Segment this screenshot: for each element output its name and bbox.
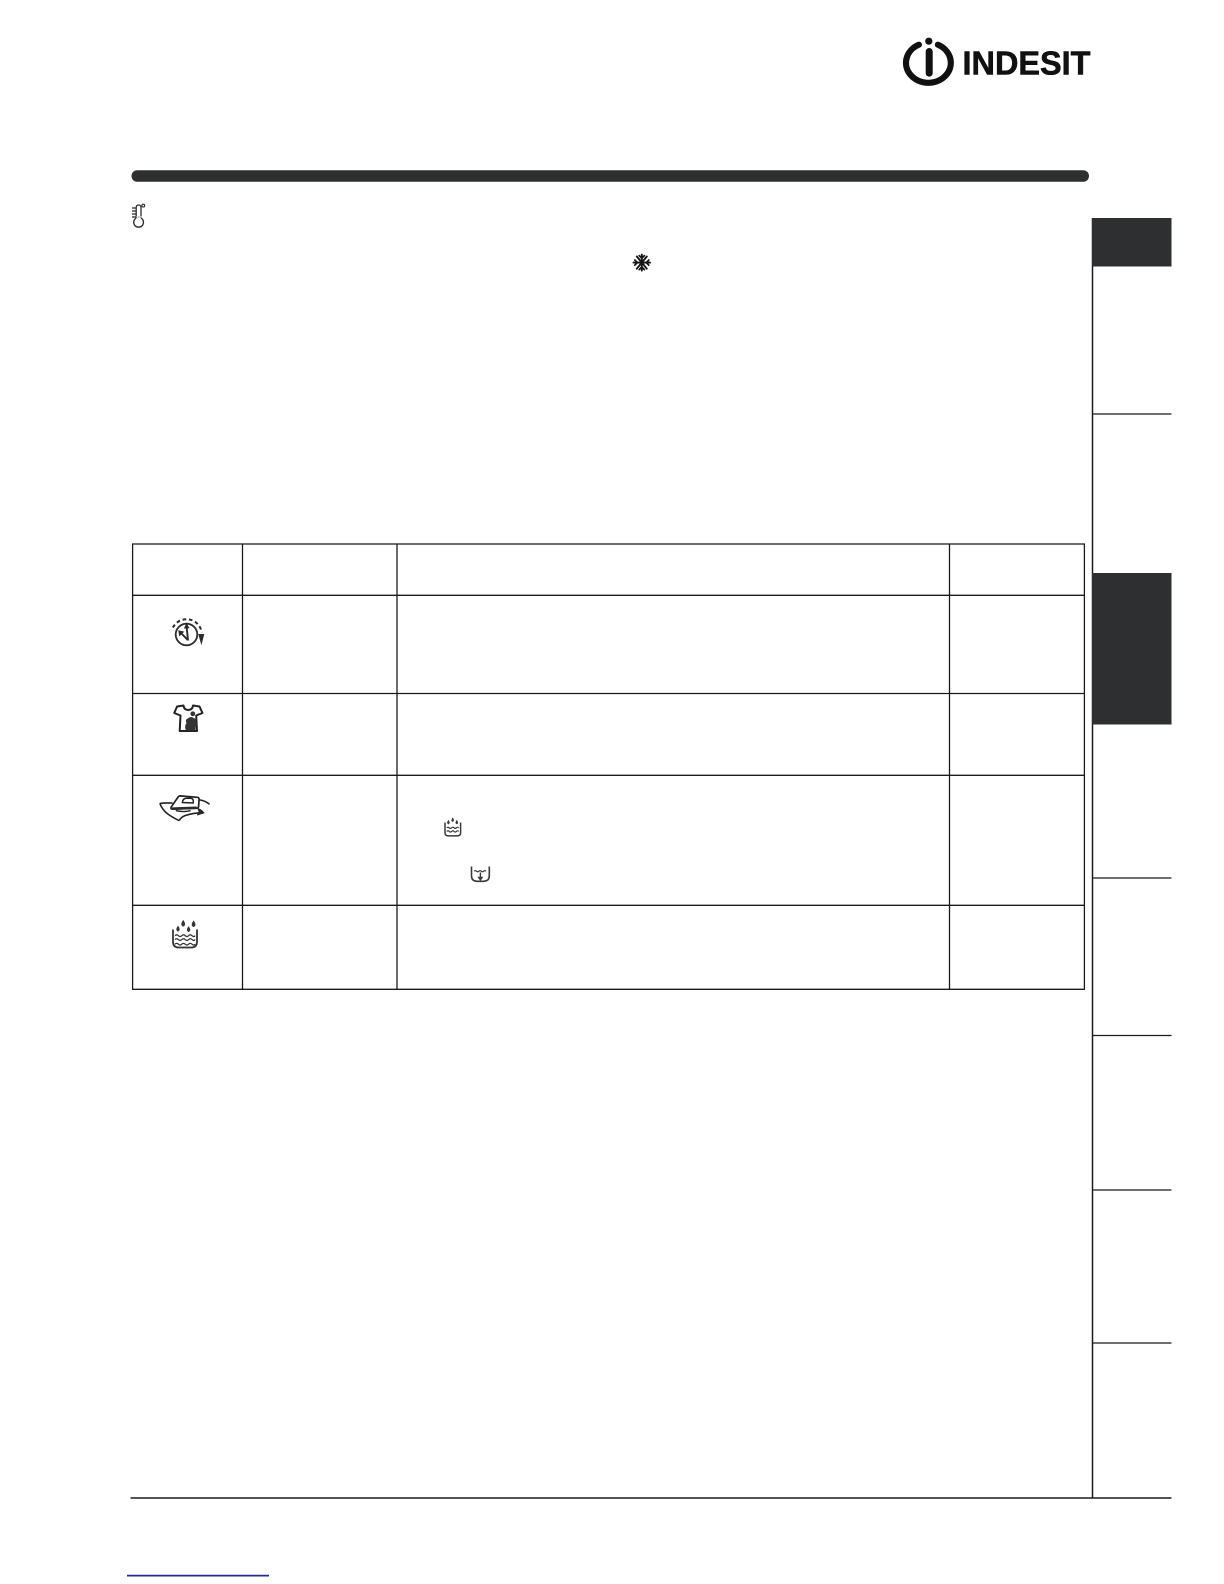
svg-text:INDESIT: INDESIT	[963, 46, 1092, 83]
